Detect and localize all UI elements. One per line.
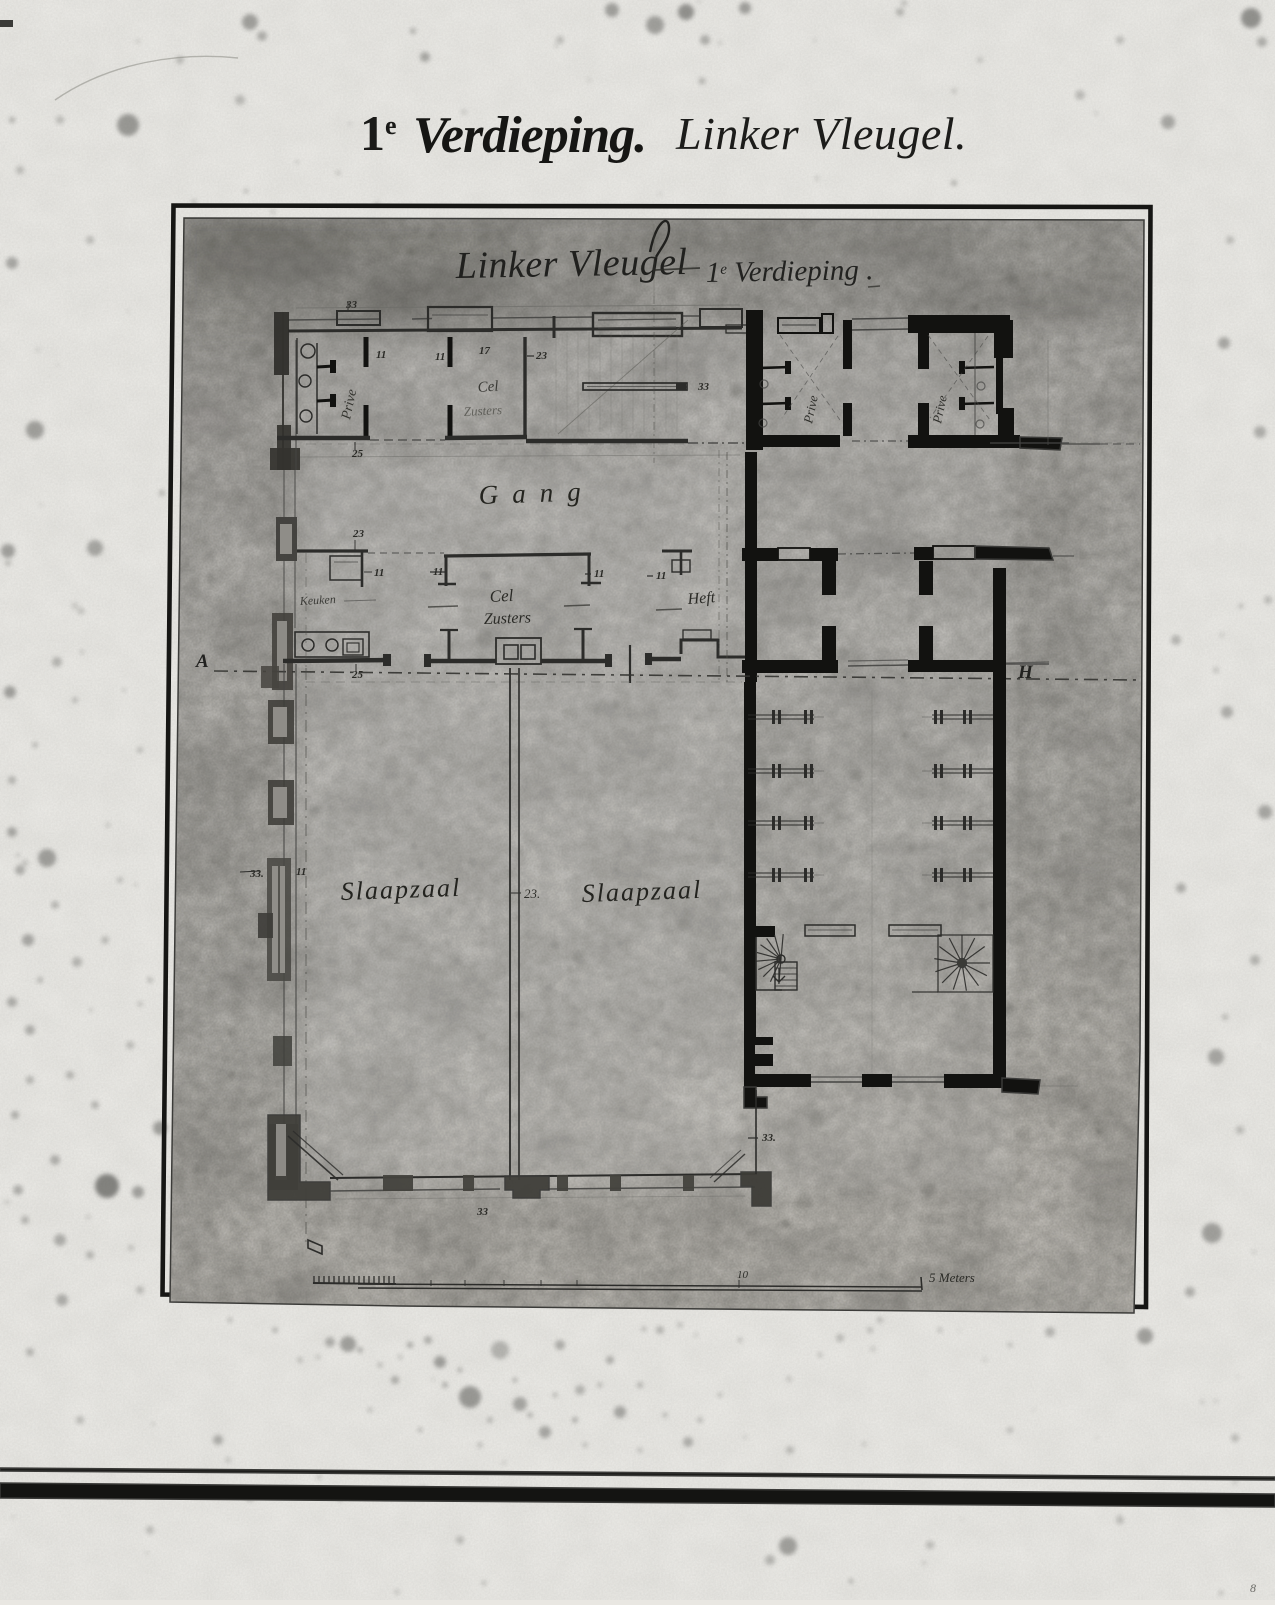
svg-text:Slaapzaal: Slaapzaal [581,875,703,908]
svg-text:Keuken: Keuken [298,592,336,608]
svg-text:Verdieping.: Verdieping. [413,107,646,164]
svg-text:10: 10 [737,1269,749,1281]
svg-text:33.: 33. [761,1132,776,1144]
svg-text:11: 11 [594,568,604,580]
svg-text:1e Verdieping .: 1e Verdieping . [706,254,874,289]
svg-text:23: 23 [535,350,548,362]
svg-text:33.: 33. [249,868,264,880]
svg-text:A: A [195,651,209,672]
svg-text:Cel: Cel [477,379,499,396]
svg-text:11: 11 [435,351,445,363]
svg-text:Linker Vleugel.: Linker Vleugel. [675,108,967,159]
svg-text:11: 11 [374,567,384,579]
svg-text:23: 23 [352,528,365,540]
svg-text:Heft: Heft [686,589,716,608]
svg-text:Zusters: Zusters [463,402,502,419]
svg-text:23.: 23. [524,886,540,901]
svg-text:5 Meters: 5 Meters [929,1270,975,1285]
svg-text:Gang: Gang [478,476,595,510]
svg-text:11: 11 [296,866,306,878]
svg-text:11: 11 [376,349,386,361]
svg-text:Zusters: Zusters [484,609,532,628]
svg-text:33: 33 [697,381,710,393]
svg-text:33: 33 [476,1206,489,1218]
svg-text:11: 11 [656,570,666,582]
svg-text:8: 8 [1250,1581,1256,1595]
svg-text:Cel: Cel [489,586,514,606]
svg-text:17: 17 [479,345,491,357]
svg-text:Slaapzaal: Slaapzaal [340,873,462,906]
svg-text:25: 25 [351,448,364,460]
svg-text:H: H [1017,662,1034,683]
svg-text:25: 25 [351,669,364,681]
svg-text:Linker Vleugel: Linker Vleugel [454,241,687,287]
svg-text:33: 33 [345,299,358,311]
